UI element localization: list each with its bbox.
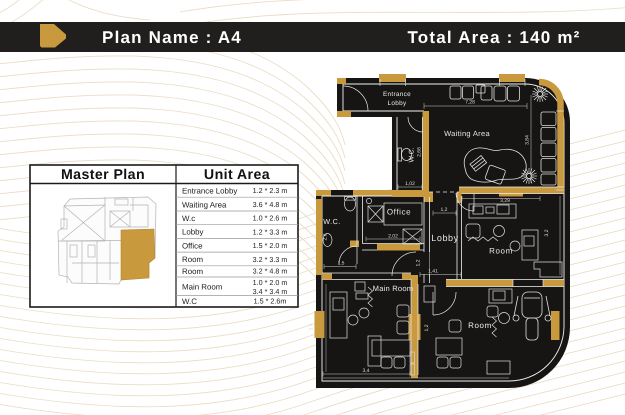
svg-text:Office: Office <box>182 241 203 250</box>
svg-text:Entrance Lobby: Entrance Lobby <box>182 187 237 196</box>
svg-text:7,28: 7,28 <box>465 100 475 106</box>
svg-text:1,2: 1,2 <box>424 324 430 331</box>
svg-text:Main Room: Main Room <box>373 284 414 293</box>
svg-text:2,66: 2,66 <box>417 147 423 157</box>
svg-text:1.0 * 2.0 m: 1.0 * 2.0 m <box>253 278 288 287</box>
svg-text:1,2: 1,2 <box>441 207 448 213</box>
svg-text:Waiting Area: Waiting Area <box>182 200 227 209</box>
svg-text:3.4 * 3.4 m: 3.4 * 3.4 m <box>253 287 288 296</box>
svg-text:1.0 * 2.6 m: 1.0 * 2.6 m <box>253 214 288 223</box>
svg-text:Waiting Area: Waiting Area <box>444 129 490 138</box>
svg-text:3,4: 3,4 <box>309 323 315 330</box>
svg-text:W.C.: W.C. <box>409 148 416 163</box>
svg-text:1,5: 1,5 <box>338 261 345 267</box>
svg-text:Lobby: Lobby <box>431 233 459 243</box>
svg-text:1.5 * 2.6m: 1.5 * 2.6m <box>254 297 287 306</box>
svg-text:1.5 * 2.0 m: 1.5 * 2.0 m <box>253 241 288 250</box>
svg-text:Room: Room <box>182 255 203 264</box>
svg-text:1.2 * 2.3 m: 1.2 * 2.3 m <box>253 186 288 195</box>
svg-text:Lobby: Lobby <box>388 100 407 107</box>
svg-text:Unit Area: Unit Area <box>204 167 270 183</box>
svg-text:Room: Room <box>468 321 492 330</box>
svg-text:W.c: W.c <box>182 214 195 223</box>
svg-text:1,2: 1,2 <box>416 259 422 266</box>
svg-text:W.C: W.C <box>182 297 197 306</box>
svg-text:Office: Office <box>387 208 411 217</box>
svg-text:3,29: 3,29 <box>500 198 510 204</box>
svg-text:1,41: 1,41 <box>428 269 438 275</box>
svg-text:2,6: 2,6 <box>323 233 329 240</box>
svg-text:3.6 * 4.8 m: 3.6 * 4.8 m <box>253 200 288 209</box>
svg-text:Entrance: Entrance <box>383 91 411 98</box>
svg-text:3.2 * 3.3 m: 3.2 * 3.3 m <box>253 255 288 264</box>
svg-text:1,02: 1,02 <box>405 181 415 187</box>
svg-text:Main Room: Main Room <box>182 283 223 292</box>
svg-text:3,2: 3,2 <box>544 229 550 236</box>
svg-text:Total Area : 140 m²: Total Area : 140 m² <box>407 28 580 47</box>
svg-text:2,02: 2,02 <box>388 234 398 240</box>
svg-text:Room: Room <box>489 247 513 256</box>
svg-text:3.2 * 4.8 m: 3.2 * 4.8 m <box>253 267 288 276</box>
svg-text:1.2 * 3.3 m: 1.2 * 3.3 m <box>253 227 288 236</box>
svg-text:Plan Name : A4: Plan Name : A4 <box>102 28 242 47</box>
svg-text:3,4: 3,4 <box>363 368 370 374</box>
svg-text:Master Plan: Master Plan <box>61 167 145 183</box>
svg-text:3,84: 3,84 <box>525 135 531 145</box>
svg-text:Lobby: Lobby <box>182 228 204 237</box>
svg-text:W.C.: W.C. <box>323 217 341 226</box>
svg-text:Room: Room <box>182 267 203 276</box>
